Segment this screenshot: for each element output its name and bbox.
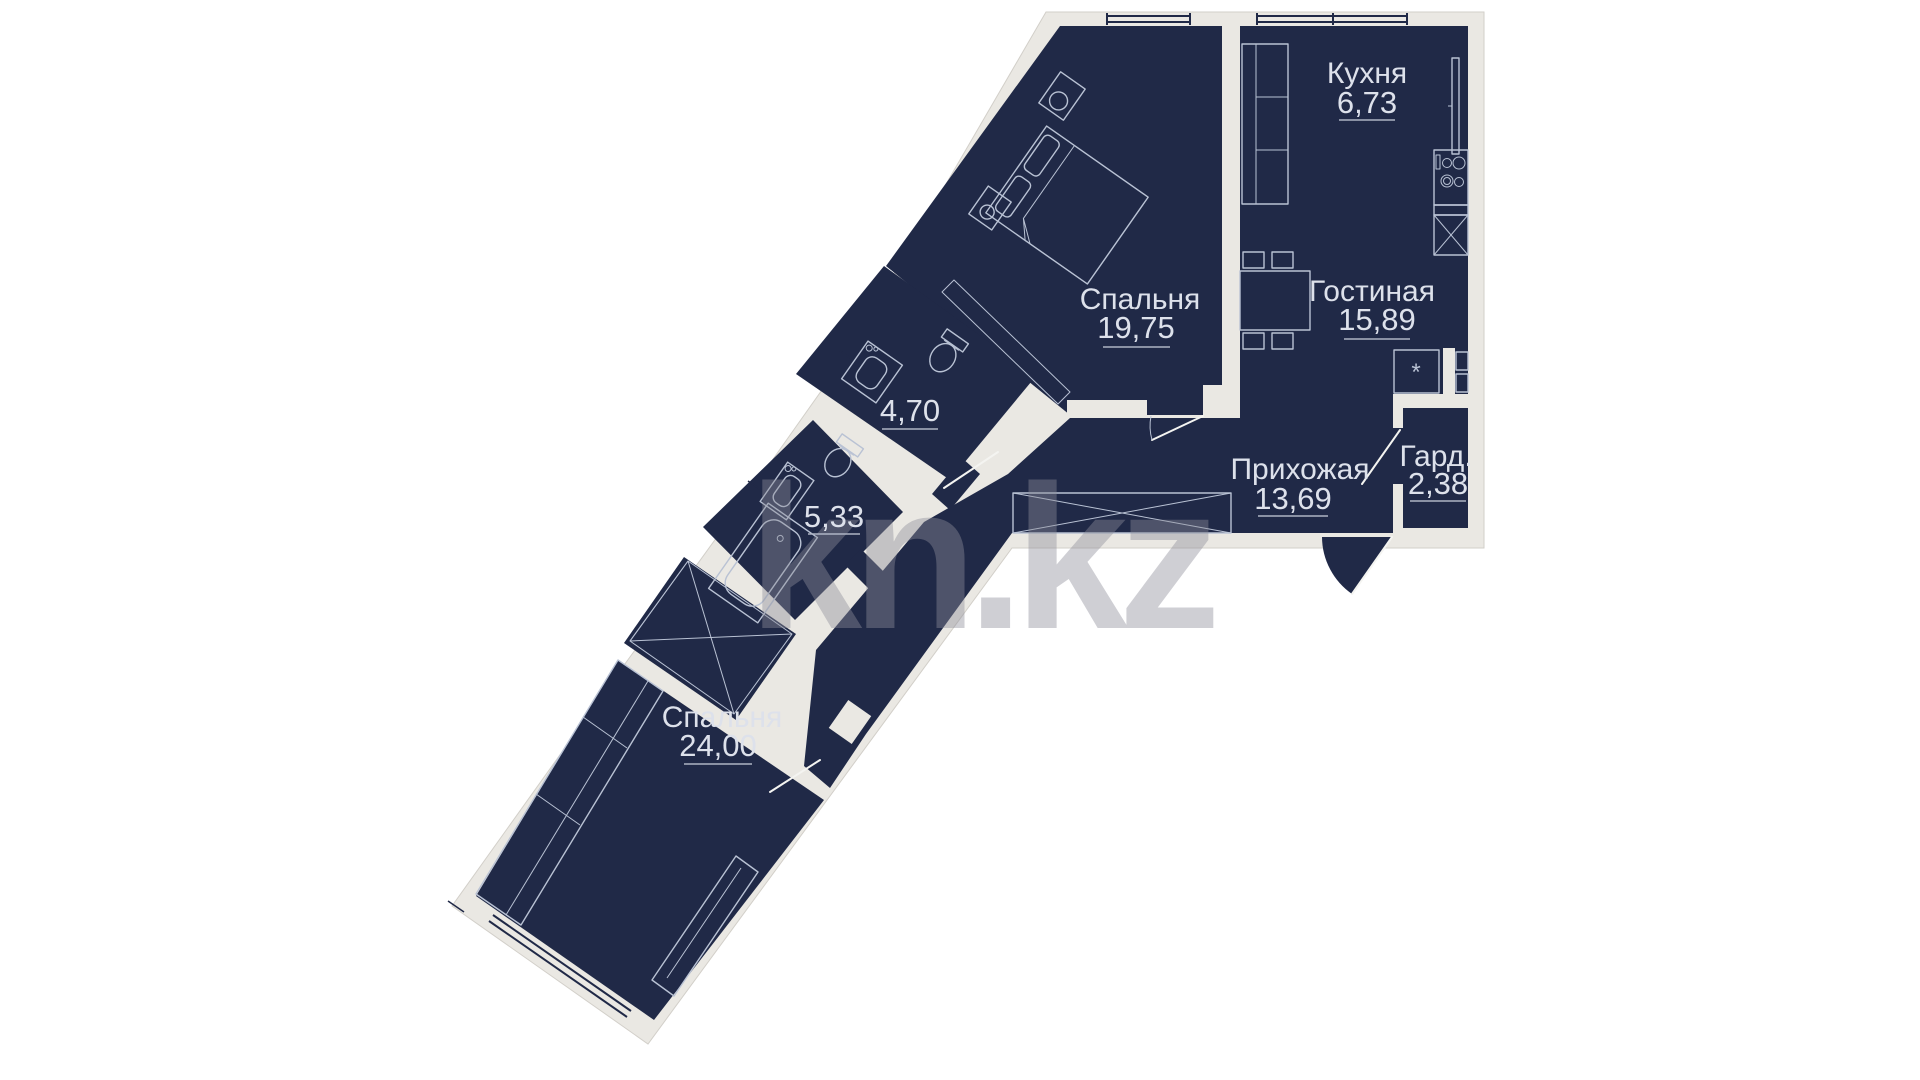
label-living-area: 15,89 [1338, 302, 1416, 337]
label-wardrobe-area: 2,38 [1408, 466, 1468, 501]
floor-plan: * [0, 0, 1920, 1080]
label-bathroom-2-area: 5,33 [804, 499, 864, 534]
floor-plan-page: * [0, 0, 1920, 1080]
shaft-mark: * [1411, 359, 1420, 386]
bedroom-1-bottom-wall [1067, 400, 1147, 416]
column [1203, 385, 1240, 415]
label-bedroom-1-area: 19,75 [1097, 310, 1175, 345]
label-kitchen-area: 6,73 [1337, 85, 1397, 120]
label-hallway-area: 13,69 [1254, 481, 1332, 516]
label-bathroom-1-area: 4,70 [880, 393, 940, 428]
watermark: kn.kz [748, 443, 1214, 672]
duct-wall [1443, 348, 1455, 396]
label-bedroom-2-area: 24,00 [679, 728, 757, 763]
